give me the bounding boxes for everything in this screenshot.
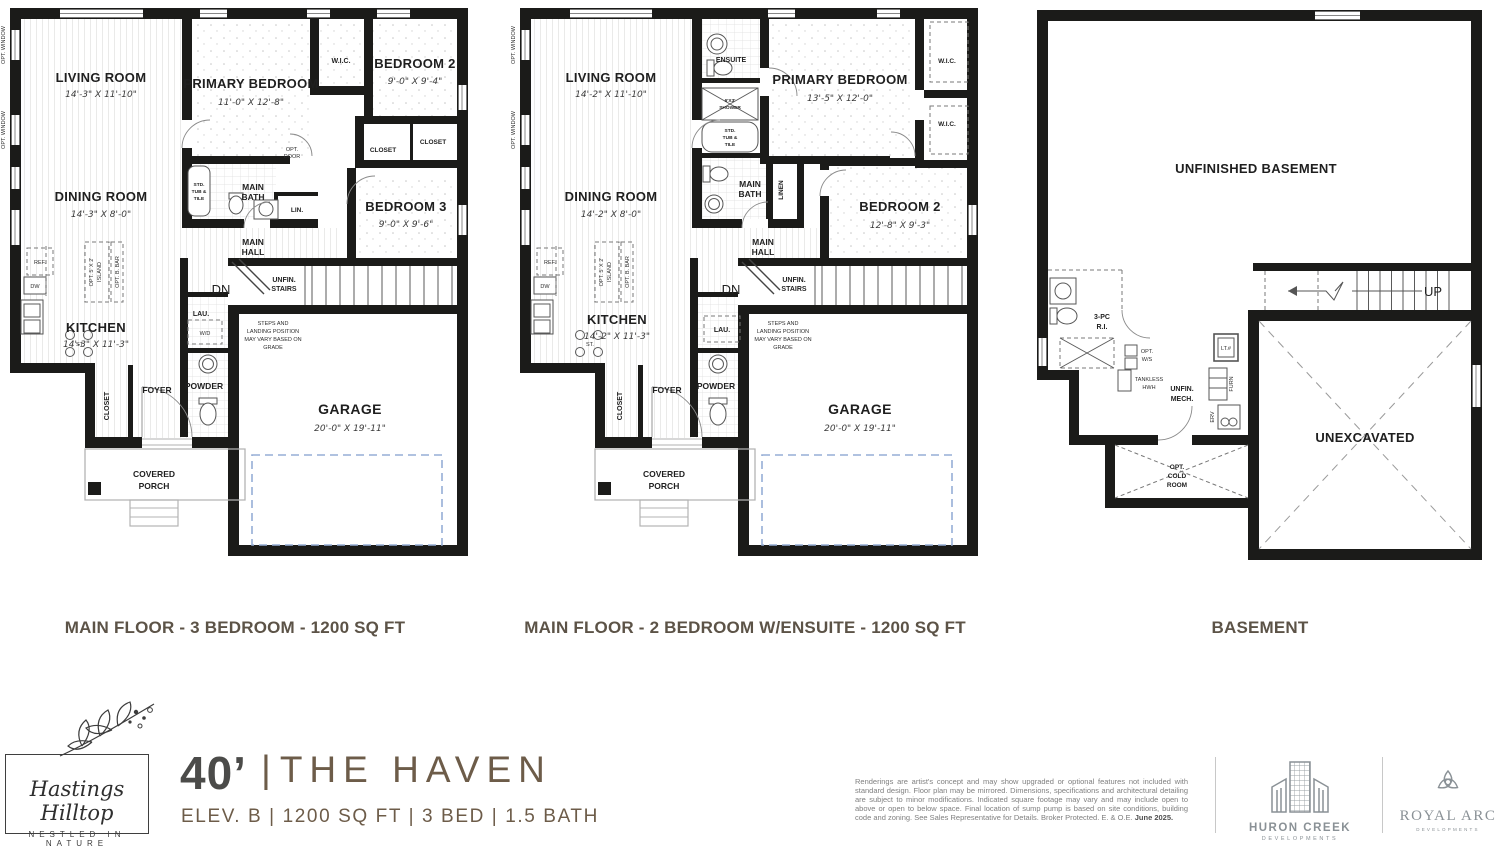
porch-label: PORCH (139, 481, 170, 491)
disclaimer: Renderings are artist's concept and may … (855, 777, 1188, 822)
page: { "captions": { "plan1": "MAIN FLOOR - 3… (0, 0, 1498, 841)
main-hall-label: HALL (242, 247, 265, 257)
dw-label: DW (540, 284, 550, 290)
tub-label: TUB & (723, 135, 738, 141)
ref-label: REF. (34, 260, 46, 266)
stairs-label: UNFIN. (272, 277, 295, 284)
trefoil-icon (1433, 768, 1463, 800)
developer-sub: DEVELOPMENTS (1398, 827, 1498, 832)
steps-note: GRADE (773, 345, 793, 351)
mech-label: MECH. (1171, 396, 1194, 403)
up-label: UP (1424, 284, 1442, 299)
tankless-label: TANKLESS (1135, 377, 1164, 383)
cold-room-label: ROOM (1167, 482, 1187, 489)
bbar-label: OPT. B. BAR (625, 256, 631, 288)
stairs-label: UNFIN. (782, 277, 805, 284)
room-label: PRIMARY BEDROOM (772, 72, 907, 87)
island-label: ISLAND (97, 262, 103, 282)
opt-window-label: OPT. WINDOW (511, 110, 517, 149)
room-dims: 9'-0" X 9'-6" (379, 220, 434, 230)
room-dims: 12'-8" X 9'-3" (870, 221, 930, 231)
plan-subtitle: ELEV. B | 1200 SQ FT | 3 BED | 1.5 BATH (181, 806, 599, 828)
developer-sub: DEVELOPMENTS (1232, 836, 1368, 842)
water-softener-label: W/S (1142, 357, 1153, 363)
main-bath-label: BATH (739, 189, 762, 199)
dn-label: DN (722, 282, 741, 297)
bbar-label: OPT. B. BAR (115, 256, 121, 288)
closet-label: CLOSET (104, 391, 111, 420)
main-bath-label: BATH (242, 192, 265, 202)
main-hall-label: MAIN (242, 237, 264, 247)
room-dims: 14'-3" X 11'-10" (65, 90, 137, 100)
botanical-sprig-icon (52, 698, 162, 760)
floorplan-basement: UNFINISHED BASEMENT UP 3-PC R.I. OPT. W/… (1030, 10, 1490, 570)
plan-title: 40’ | THE HAVEN (180, 750, 552, 796)
wic-label: W.I.C. (331, 58, 350, 65)
room-label: BEDROOM 2 (859, 199, 940, 214)
rough-in-label: R.I. (1097, 324, 1108, 331)
shower-label: 6'X3' (725, 98, 736, 104)
basement-windows (1037, 10, 1482, 407)
porch-label: COVERED (643, 469, 685, 479)
room-dims: 14'-3" X 8'-0" (71, 210, 131, 220)
footer-divider (1215, 757, 1216, 833)
island-label: ISLAND (607, 262, 613, 282)
room-dims: 14'-2" X 11'-3" (584, 332, 650, 342)
room-label: GARAGE (828, 401, 892, 417)
steps-note: LANDING POSITION (757, 329, 809, 335)
room-dims: 14'-3" X 11'-3" (63, 340, 129, 350)
room-dims: 14'-2" X 11'-10" (575, 90, 647, 100)
room-label: DINING ROOM (565, 189, 658, 204)
basement-walls (1037, 10, 1482, 560)
steps-note: LANDING POSITION (247, 329, 299, 335)
room-label: BEDROOM 2 (374, 56, 455, 71)
caption-main-3bed: MAIN FLOOR - 3 BEDROOM - 1200 SQ FT (0, 618, 470, 638)
steps-note: STEPS AND (768, 321, 799, 327)
closet-label: CLOSET (420, 139, 446, 146)
main-bath-label: MAIN (242, 182, 264, 192)
room-label: KITCHEN (66, 320, 126, 335)
floorplan-main-2bed-ensuite: OPT. WINDOW OPT. WINDOW LIVING ROOM 14'-… (510, 8, 980, 556)
room-label: DINING ROOM (55, 189, 148, 204)
dn-label: DN (212, 282, 231, 297)
plan-name: THE HAVEN (280, 750, 552, 791)
frontage-label: 40’ (180, 750, 247, 796)
room-label: GARAGE (318, 401, 382, 417)
laundry-label: LAU. (193, 311, 209, 318)
room-dims: 14'-2" X 8'-0" (581, 210, 641, 220)
lt-label: LT.# (1221, 346, 1232, 352)
island-label: OPT. 5' X 2' (599, 258, 605, 287)
disclaimer-date: June 2025. (1135, 813, 1173, 822)
dw-label: DW (30, 284, 40, 290)
basement-stairs (1265, 271, 1449, 310)
tub-label: TILE (725, 142, 736, 148)
powder-label: POWDER (185, 381, 223, 391)
furnace-label: FURN (1229, 376, 1235, 391)
tub-label: STD. (725, 128, 736, 134)
stairs-label: STAIRS (271, 286, 296, 293)
caption-basement: BASEMENT (1030, 618, 1490, 638)
linen-label: LINEN (778, 180, 785, 200)
opt-window-label: OPT. WINDOW (1, 25, 7, 64)
caption-main-2bed: MAIN FLOOR - 2 BEDROOM W/ENSUITE - 1200 … (510, 618, 980, 638)
closet-label: CLOSET (370, 147, 396, 154)
closet-label: CLOSET (617, 391, 624, 420)
community-name: Hastings Hilltop (6, 777, 148, 825)
plan1-porch (85, 449, 442, 545)
erv-label: ERV (1210, 411, 1216, 423)
room-dims: 11'-0" X 12'-8" (218, 98, 284, 108)
steps-note: STEPS AND (258, 321, 289, 327)
room-label: UNFINISHED BASEMENT (1175, 161, 1337, 176)
buildings-icon (1269, 760, 1331, 814)
tub-label: TILE (194, 196, 205, 202)
plan2-porch (595, 449, 952, 545)
main-hall-label: MAIN (752, 237, 774, 247)
porch-label: PORCH (649, 481, 680, 491)
huron-creek-logo: HURON CREEK DEVELOPMENTS (1232, 760, 1368, 842)
shower-label: SHOWER (719, 105, 741, 111)
main-hall-label: HALL (752, 247, 775, 257)
room-dims: 13'-5" X 12'-0" (807, 94, 873, 104)
royal-arc-logo: ROYAL ARC DEVELOPMENTS (1398, 768, 1498, 832)
mech-label: UNFIN. (1170, 386, 1193, 393)
developer-name: HURON CREEK (1232, 822, 1368, 834)
wic-label: W.I.C. (938, 121, 956, 128)
cold-room-label: OPT. (1170, 464, 1185, 471)
ref-label: REF. (544, 260, 556, 266)
tankless-label: HWH (1142, 385, 1155, 391)
room-label: UNEXCAVATED (1315, 430, 1414, 445)
room-label: KITCHEN (587, 312, 647, 327)
powder-label: POWDER (697, 381, 735, 391)
tub-label: STD. (194, 182, 205, 188)
community-tagline: NESTLED IN NATURE (6, 830, 148, 848)
room-dims: 20'-0" X 19'-11" (314, 424, 386, 434)
water-softener-label: OPT. (1141, 349, 1154, 355)
stairs-label: STAIRS (781, 286, 806, 293)
developer-name: ROYAL ARC (1398, 808, 1498, 825)
opt-window-label: OPT. WINDOW (511, 25, 517, 64)
room-label: PRIMARY BEDROOM (183, 76, 318, 91)
floorplan-main-3bed: OPT. WINDOW OPT. WINDOW LIVING ROOM 14'-… (0, 8, 470, 556)
steps-note: MAY VARY BASED ON (754, 337, 811, 343)
title-divider: | (261, 750, 271, 792)
linen-label: LIN. (291, 207, 303, 214)
foyer-label: FOYER (142, 385, 171, 395)
opt-door-label: DOOR (284, 154, 301, 160)
steps-note: MAY VARY BASED ON (244, 337, 301, 343)
footer-divider (1382, 757, 1383, 833)
wic-label: W.I.C. (938, 58, 956, 65)
room-label: LIVING ROOM (56, 70, 147, 85)
room-dims: 20'-0" X 19'-11" (824, 424, 896, 434)
stove-label: ST. (76, 342, 84, 348)
opt-window-label: OPT. WINDOW (1, 110, 7, 149)
foyer-label: FOYER (652, 385, 681, 395)
porch-label: COVERED (133, 469, 175, 479)
laundry-label: LAU. (714, 327, 730, 334)
stove-label: ST. (586, 342, 594, 348)
steps-note: GRADE (263, 345, 283, 351)
community-logo: Hastings Hilltop NESTLED IN NATURE (5, 754, 149, 834)
rough-in-label: 3-PC (1094, 314, 1110, 321)
island-label: OPT. 5' X 2' (89, 258, 95, 287)
room-label: BEDROOM 3 (365, 199, 446, 214)
ensuite-label: ENSUITE (716, 57, 747, 64)
room-dims: 9'-0" X 9'-4" (388, 77, 443, 87)
tub-label: TUB & (192, 189, 207, 195)
cold-room-label: COLD (1168, 473, 1187, 480)
wd-label: W/D (200, 331, 211, 337)
room-label: LIVING ROOM (566, 70, 657, 85)
main-bath-label: MAIN (739, 179, 761, 189)
opt-door-label: OPT. (286, 147, 299, 153)
